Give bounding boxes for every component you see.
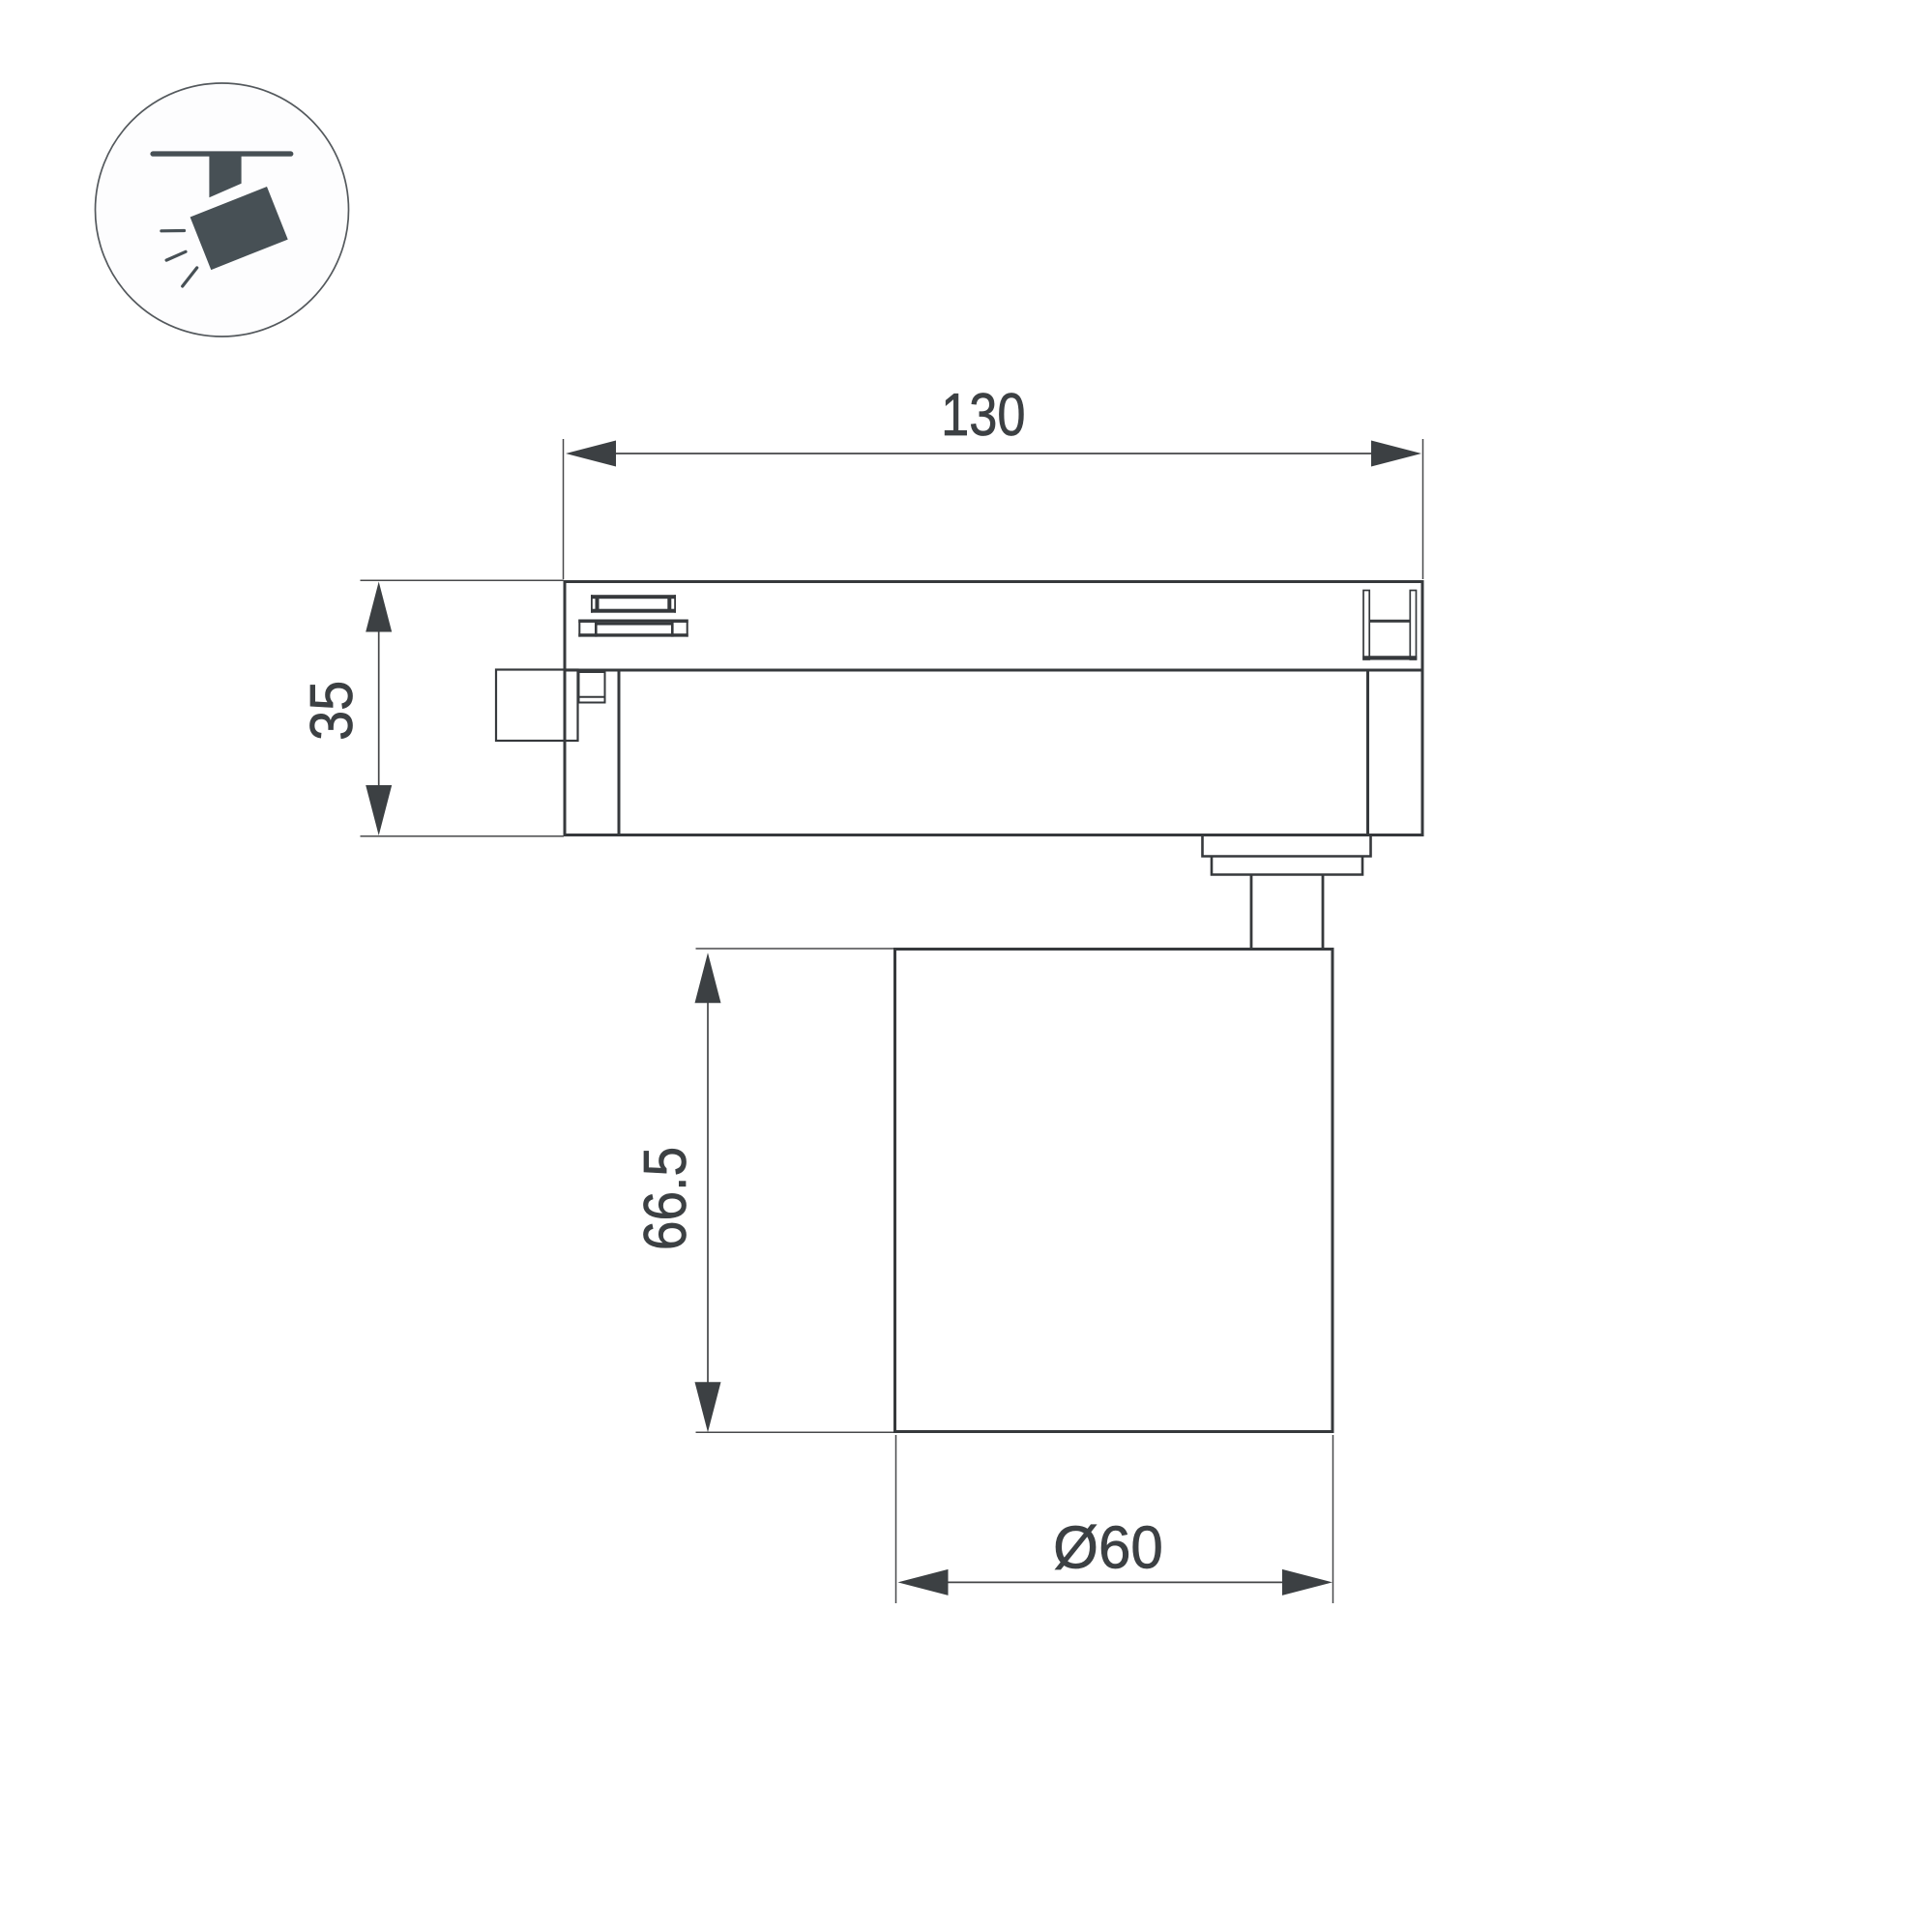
svg-text:130: 130 [941, 382, 1025, 449]
svg-text:66.5: 66.5 [632, 1147, 699, 1250]
svg-text:Ø60: Ø60 [1053, 1514, 1163, 1581]
svg-text:35: 35 [299, 681, 365, 741]
